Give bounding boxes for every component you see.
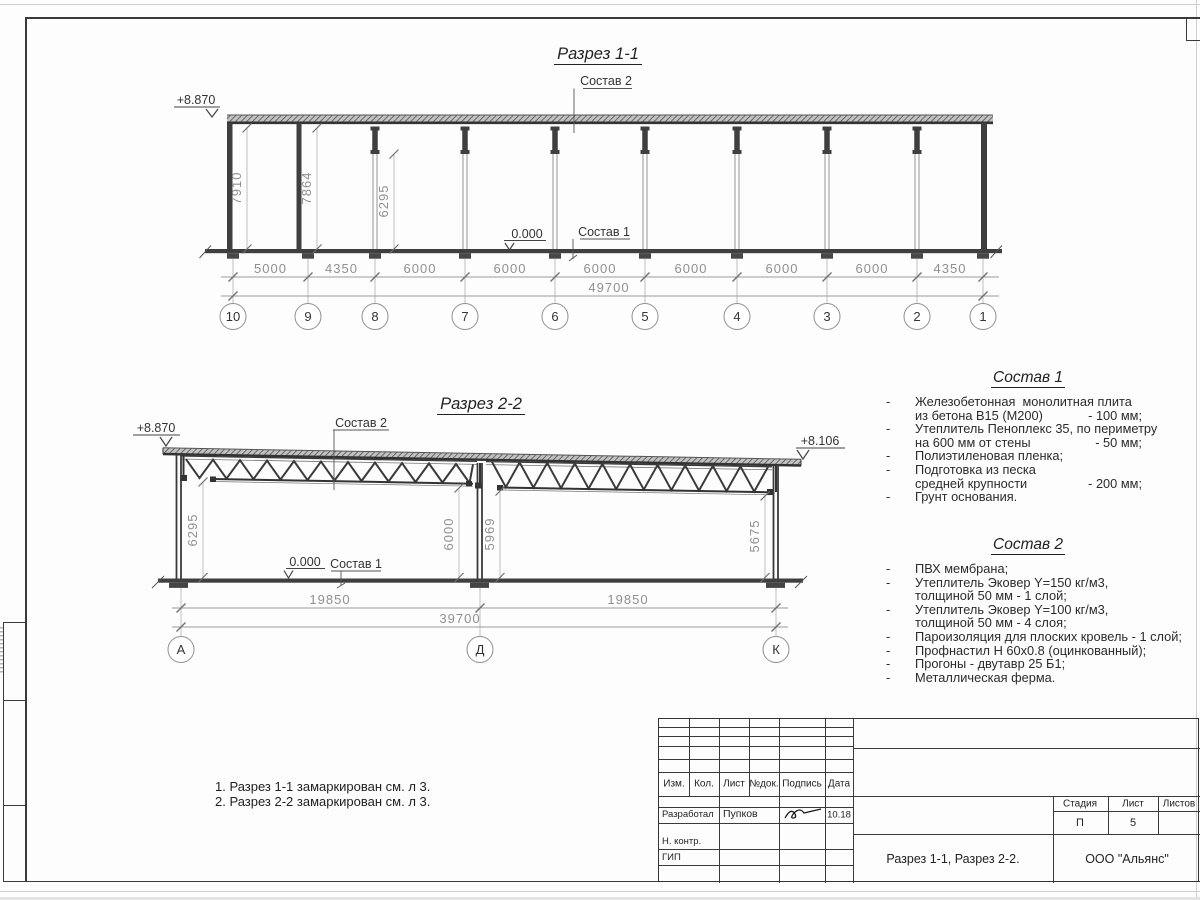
grid-label: 4 — [733, 309, 740, 324]
list-item: толщиной 50 мм - 1 слой; — [886, 589, 1142, 603]
base-pads — [227, 253, 989, 259]
elevation-mark-left: +8.870 — [133, 421, 180, 446]
svg-text:Состав 1: Состав 1 — [578, 225, 630, 239]
list-item: на 600 мм от стены- 50 мм; — [886, 436, 1142, 450]
tb-header-podpis: Подпись — [782, 779, 822, 790]
list-item: -Грунт основания. — [886, 490, 1142, 504]
elevation-zero-s1: 0.000 — [504, 227, 546, 250]
span-dim: 4350 — [325, 261, 358, 276]
sostav1-heading: Состав 1 — [955, 369, 1101, 387]
title-block: Изм. Кол. Лист №док. Подпись Дата Разраб… — [658, 718, 1199, 882]
grid-label: 2 — [913, 309, 920, 324]
roof-slab — [227, 115, 993, 123]
grid-label: А — [177, 642, 186, 657]
tb-doc-title: Разрез 1-1, Разрез 2-2. — [886, 852, 1019, 866]
tb-company: ООО "Альянс" — [1085, 852, 1169, 866]
grid-label: К — [772, 642, 780, 657]
list-item: -Полиэтиленовая пленка; — [886, 449, 1142, 463]
section-2-2-drawing: 19850 19850 39700 А Д К 6295 6000 — [133, 416, 845, 663]
tb-header-izm: Изм. — [663, 779, 684, 790]
tb-nkontr-label: Н. контр. — [662, 836, 701, 847]
tb-header-data: Дата — [828, 779, 850, 790]
svg-text:+8.106: +8.106 — [801, 434, 840, 448]
sostav1-list: -Железобетонная монолитная плита из бето… — [886, 395, 1142, 504]
tb-header-kol: Кол. — [694, 779, 714, 790]
callout-sostav2-s1: Состав 2 — [574, 74, 632, 133]
grid-label: 7 — [461, 309, 468, 324]
floor-slab-2-2 — [158, 579, 803, 583]
list-item: толщиной 50 мм - 4 слоя; — [886, 616, 1142, 630]
svg-text:+8.870: +8.870 — [137, 421, 176, 435]
drawing-sheet: Разрез 1-1 Разрез 2-2 — [0, 0, 1200, 900]
list-item: -Профнастил Н 60х0.8 (оцинкованный); — [886, 644, 1142, 658]
tb-razrabotal-date: 10.18 — [827, 810, 851, 821]
vert-dim: 5969 — [482, 518, 497, 551]
span-dim: 19850 — [607, 592, 648, 607]
span-dim: 6000 — [856, 261, 889, 276]
span-dim: 6000 — [675, 261, 708, 276]
vert-dim: 7864 — [299, 172, 314, 205]
grid-label: 10 — [226, 309, 240, 324]
svg-text:0.000: 0.000 — [289, 555, 320, 569]
grid-label: 9 — [304, 309, 311, 324]
signature — [782, 806, 824, 821]
list-item: -Прогоны - двутавр 25 Б1; — [886, 657, 1142, 671]
svg-text:Состав 2: Состав 2 — [335, 416, 387, 430]
note-line: 1. Разрез 1-1 замаркирован см. л 3. — [215, 780, 430, 795]
base-pads-2-2 — [169, 583, 785, 588]
elevation-zero-s2: 0.000 — [284, 555, 325, 578]
grid-bubbles-1-1 — [220, 304, 996, 330]
span-dim: 6000 — [404, 261, 437, 276]
list-item: -Подготовка из песка — [886, 463, 1142, 477]
list-item: -ПВХ мембрана; — [886, 562, 1142, 576]
vert-dim: 6000 — [441, 518, 456, 551]
tb-list-label: Лист — [1122, 798, 1144, 809]
interior-columns — [371, 127, 922, 250]
tb-list-value: 5 — [1130, 817, 1136, 829]
svg-text:0.000: 0.000 — [511, 227, 542, 241]
span-dim: 6000 — [584, 261, 617, 276]
list-item: средней крупности- 200 мм; — [886, 477, 1142, 491]
grid-label: 3 — [823, 309, 830, 324]
vert-dim: 7910 — [229, 172, 244, 205]
tb-razrabotal-label: Разработал — [662, 809, 714, 820]
sostav2-heading-text: Состав 2 — [991, 536, 1065, 555]
span-dim: 19850 — [309, 592, 350, 607]
grid-label: 5 — [641, 309, 648, 324]
list-item: -Железобетонная монолитная плита — [886, 395, 1142, 409]
note-line: 2. Разрез 2-2 замаркирован см. л 3. — [215, 795, 430, 810]
grid-label: 8 — [371, 309, 378, 324]
vert-dim: 5675 — [747, 520, 762, 553]
span-dim: 6000 — [494, 261, 527, 276]
tb-stadia-label: Стадия — [1063, 798, 1097, 809]
sheet-notes: 1. Разрез 1-1 замаркирован см. л 3. 2. Р… — [215, 780, 430, 809]
column-grid1 — [981, 123, 987, 249]
vert-dim: 6295 — [185, 514, 200, 547]
list-item: -Утеплитель Пеноплекс 35, по периметру — [886, 422, 1142, 436]
list-item: -Пароизоляция для плоских кровель - 1 сл… — [886, 630, 1142, 644]
svg-text:Состав 2: Состав 2 — [580, 74, 632, 88]
section-1-1-drawing: 5000 4350 6000 6000 6000 6000 6000 6000 … — [174, 74, 1002, 330]
sostav2-heading: Состав 2 — [955, 536, 1101, 554]
sostav1-heading-text: Состав 1 — [991, 369, 1065, 388]
tb-header-ndok: №док. — [749, 779, 778, 790]
grid-label: 6 — [551, 309, 558, 324]
tb-header-list: Лист — [723, 779, 745, 790]
span-dim: 4350 — [934, 261, 967, 276]
list-item: -Утеплитель Эковер Y=150 кг/м3, — [886, 576, 1142, 590]
grid-label: Д — [476, 642, 485, 657]
total-dim: 49700 — [588, 280, 629, 295]
svg-text:+8.870: +8.870 — [177, 93, 216, 107]
span-dim: 6000 — [766, 261, 799, 276]
grid-label: 1 — [979, 309, 986, 324]
callout-sostav1-s1: Состав 1 — [569, 225, 630, 261]
tb-stadia-value: П — [1076, 817, 1084, 829]
vert-dim: 6295 — [376, 185, 391, 218]
svg-text:Состав 1: Состав 1 — [330, 557, 382, 571]
span-dim: 5000 — [254, 261, 287, 276]
elevation-mark-top: +8.870 — [174, 93, 220, 117]
total-dim: 39700 — [439, 611, 480, 626]
list-item: из бетона В15 (М200)- 100 мм; — [886, 409, 1142, 423]
list-item: -Утеплитель Эковер Y=100 кг/м3, — [886, 603, 1142, 617]
columns-2-2 — [177, 454, 779, 579]
sostav2-list: -ПВХ мембрана; -Утеплитель Эковер Y=150 … — [886, 562, 1142, 684]
callout-sostav1-s2: Состав 1 — [330, 557, 382, 588]
elevation-mark-right: +8.106 — [796, 434, 845, 459]
list-item: -Металлическая ферма. — [886, 671, 1142, 685]
floor-slab — [205, 249, 1002, 253]
tb-listov-label: Листов — [1163, 798, 1196, 809]
tb-razrabotal-name: Пупков — [723, 808, 758, 820]
tb-gip-label: ГИП — [662, 852, 681, 863]
